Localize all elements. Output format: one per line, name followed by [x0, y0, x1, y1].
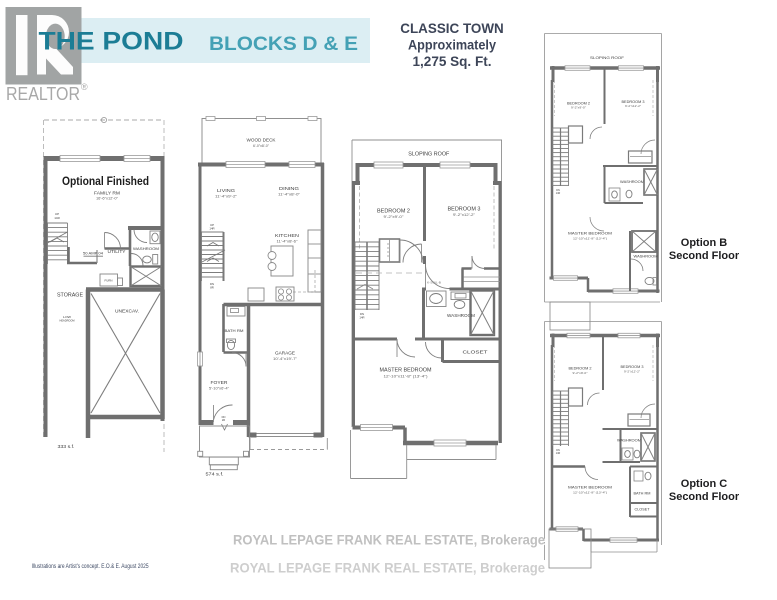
svg-text:10'-4"x19'-7": 10'-4"x19'-7" [273, 357, 297, 361]
svg-text:6'-0"x8'-0": 6'-0"x8'-0" [253, 144, 269, 148]
svg-text:16'-6"x12'-0": 16'-6"x12'-0" [96, 197, 119, 201]
svg-text:BEDROOM 2: BEDROOM 2 [569, 367, 592, 371]
svg-text:9'-2"x9'-0": 9'-2"x9'-0" [573, 372, 588, 375]
svg-text:K-SOIL-B: K-SOIL-B [427, 281, 441, 285]
svg-text:MASTER BEDROOM: MASTER BEDROOM [568, 486, 612, 490]
svg-text:Approximately: Approximately [408, 37, 496, 53]
svg-text:14R: 14R [359, 316, 364, 320]
svg-text:STORAGE: STORAGE [57, 293, 84, 299]
svg-text:WASHROOM: WASHROOM [620, 180, 644, 184]
svg-text:9'-2"x12'-2": 9'-2"x12'-2" [453, 213, 475, 217]
svg-text:MASTER BEDROOM: MASTER BEDROOM [380, 368, 432, 374]
svg-text:BEDROOM 2: BEDROOM 2 [377, 209, 410, 215]
svg-text:ROYAL LEPAGE FRANK REAL ESTATE: ROYAL LEPAGE FRANK REAL ESTATE, Brokerag… [233, 532, 545, 548]
svg-text:14R: 14R [556, 452, 561, 455]
svg-text:333 s.f.: 333 s.f. [58, 444, 75, 449]
svg-text:WASHROOM: WASHROOM [617, 439, 641, 443]
svg-text:MASTER BEDROOM: MASTER BEDROOM [568, 232, 612, 236]
svg-text:14R: 14R [556, 192, 561, 195]
svg-text:WOOD DECK: WOOD DECK [247, 138, 277, 143]
svg-text:LIVING: LIVING [217, 188, 235, 194]
svg-text:50 AMP 04: 50 AMP 04 [83, 252, 103, 256]
svg-text:BEDROOM 3: BEDROOM 3 [621, 365, 644, 369]
svg-text:14R: 14R [209, 227, 214, 231]
svg-text:CLASSIC TOWN: CLASSIC TOWN [400, 20, 504, 36]
svg-text:11'-4"x8'-0": 11'-4"x8'-0" [278, 193, 300, 197]
svg-text:HEADROOM: HEADROOM [60, 319, 75, 323]
svg-text:12'-10"x11'-8" (13'-4"): 12'-10"x11'-8" (13'-4") [573, 238, 607, 241]
svg-text:574 s.f.: 574 s.f. [206, 472, 224, 477]
svg-text:8R: 8R [210, 286, 214, 290]
svg-text:UNEXCAV.: UNEXCAV. [115, 309, 139, 314]
svg-text:ROYAL LEPAGE FRANK REAL ESTATE: ROYAL LEPAGE FRANK REAL ESTATE, Brokerag… [230, 560, 545, 576]
svg-text:DINING: DINING [279, 186, 299, 192]
svg-text:BATH RM: BATH RM [225, 328, 244, 333]
svg-text:14R: 14R [54, 216, 60, 220]
svg-text:LOW: LOW [63, 315, 72, 319]
svg-text:BLOCKS D & E: BLOCKS D & E [209, 34, 358, 55]
svg-text:2R: 2R [222, 418, 225, 422]
svg-text:11'-4"x9'-2": 11'-4"x9'-2" [215, 195, 237, 199]
svg-text:CLOSET: CLOSET [463, 350, 488, 356]
svg-text:THE POND: THE POND [39, 28, 184, 56]
svg-text:FOYER: FOYER [211, 380, 229, 385]
svg-text:SLOPING ROOF: SLOPING ROOF [408, 152, 449, 158]
svg-text:5'-10"x6'-4": 5'-10"x6'-4" [209, 387, 229, 391]
svg-text:11'-4"x8'-6": 11'-4"x8'-6" [277, 240, 298, 244]
svg-text:GARAGE: GARAGE [275, 351, 295, 357]
svg-text:Illustrations are Artist's con: Illustrations are Artist's concept. E.O.… [32, 564, 150, 570]
svg-text:12'-10"x11'-8" (13'-4"): 12'-10"x11'-8" (13'-4") [384, 375, 428, 379]
svg-text:9'-2"x12'-2": 9'-2"x12'-2" [624, 371, 640, 374]
svg-text:UTILITY: UTILITY [108, 249, 126, 254]
svg-text:WASHROOM: WASHROOM [133, 246, 159, 251]
svg-text:9'-2"x9'-0": 9'-2"x9'-0" [384, 215, 404, 219]
svg-text:1,275 Sq. Ft.: 1,275 Sq. Ft. [413, 53, 492, 69]
svg-text:FURN: FURN [105, 279, 113, 283]
svg-text:BEDROOM 3: BEDROOM 3 [448, 207, 481, 213]
svg-text:CLOSET: CLOSET [635, 508, 650, 512]
svg-text:FAMILY RM: FAMILY RM [94, 191, 121, 196]
svg-text:KITCHEN: KITCHEN [275, 233, 300, 239]
svg-text:12'-10"x11'-8" (13'-4"): 12'-10"x11'-8" (13'-4") [573, 492, 607, 495]
svg-text:Optional Finished: Optional Finished [62, 176, 149, 188]
